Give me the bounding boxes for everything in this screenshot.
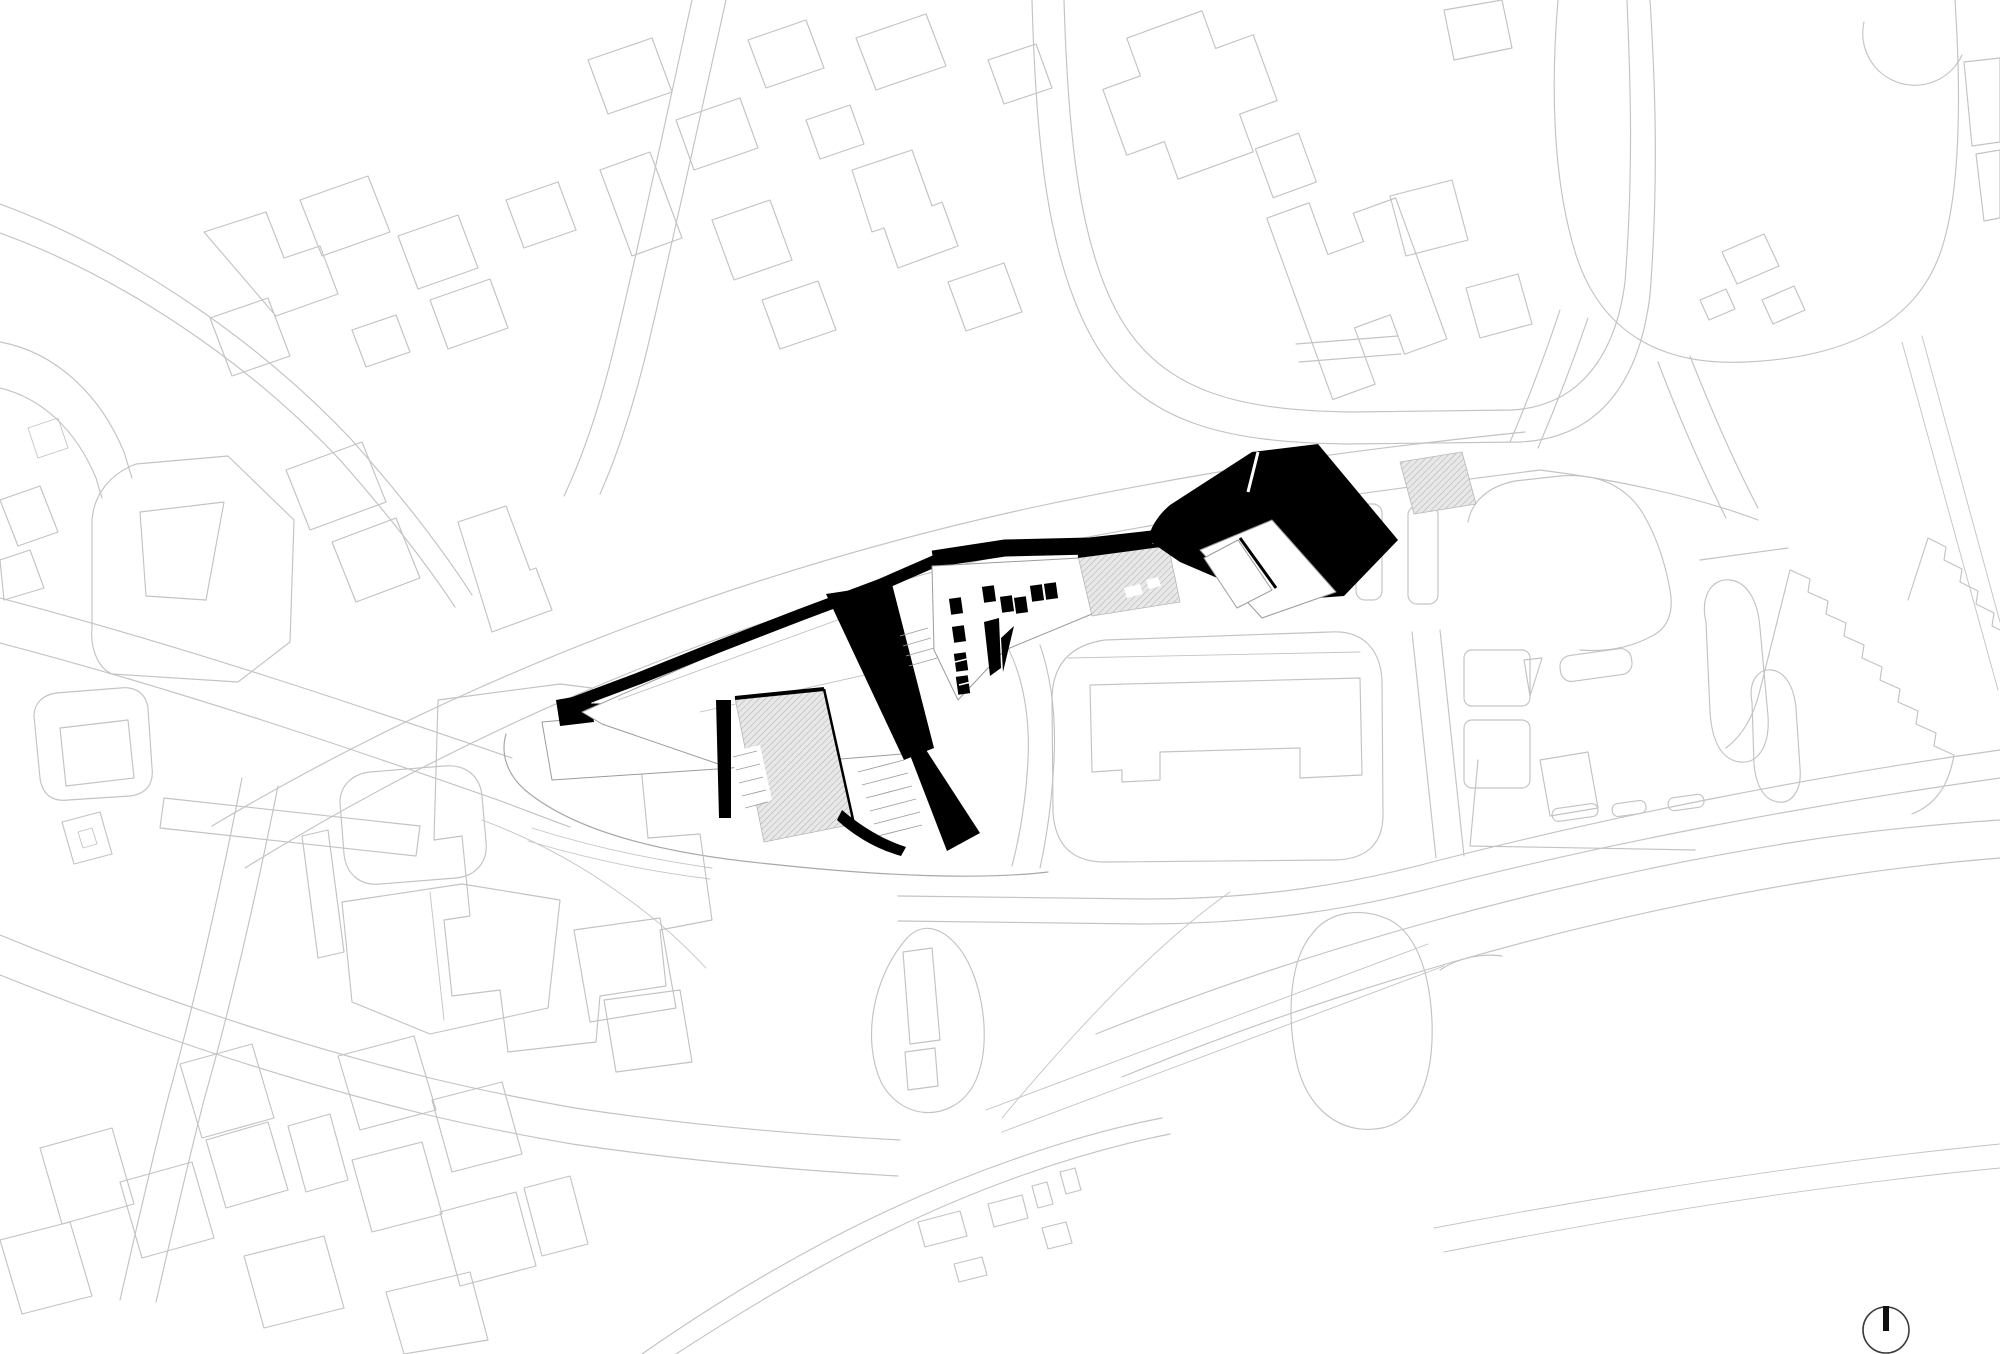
context-buildings [0, 0, 2000, 1354]
project-plaza-hatch-sliver [1400, 452, 1476, 514]
project-wall-slab-west [716, 700, 731, 818]
site-plan-canvas [0, 0, 2000, 1354]
context-roads [0, 0, 2000, 1354]
site-plan-drawing [0, 0, 2000, 1354]
north-arrow-icon [1863, 1306, 1909, 1353]
